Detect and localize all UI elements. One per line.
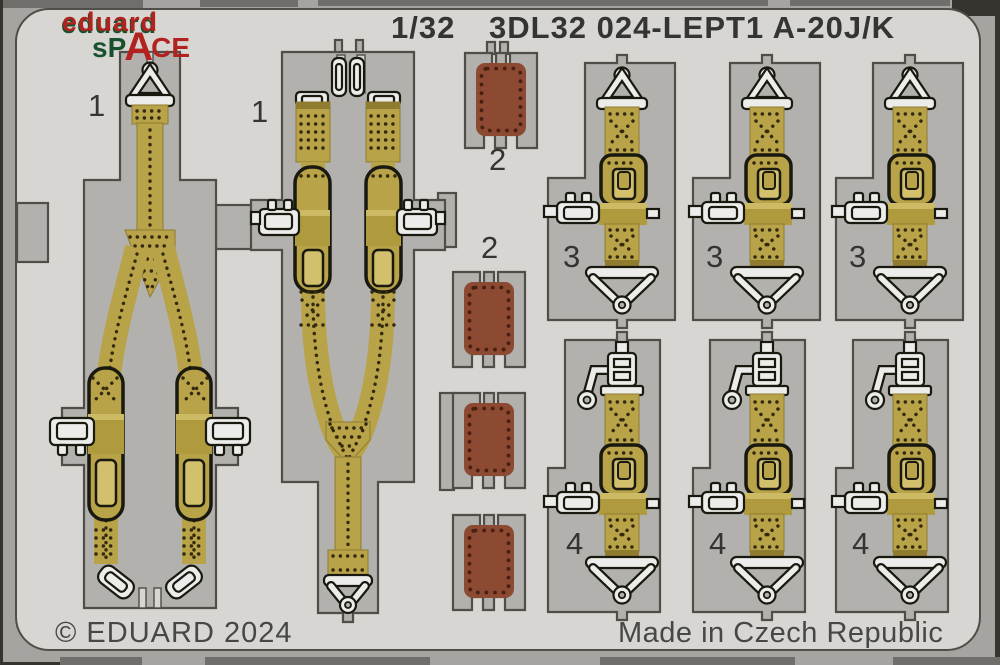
part-4-belt — [544, 332, 660, 620]
part-1-front-harness — [50, 52, 250, 608]
part-number-label: 4 — [852, 528, 869, 559]
eduard-space-logo: eduard sPACE — [58, 9, 190, 67]
part-3-belt — [544, 55, 675, 328]
made-in-label: Made in Czech Republic — [618, 617, 943, 650]
copyright-notice: © EDUARD 2024 — [55, 617, 292, 650]
fret-bridge — [17, 203, 48, 262]
part-4-belt — [832, 332, 948, 620]
part-number-label: 3 — [563, 241, 580, 272]
scale-label: 1/32 — [391, 10, 455, 46]
parts-artwork — [0, 0, 1000, 665]
part-2-pad — [465, 53, 537, 148]
part-2-pad — [453, 393, 525, 488]
brand-space-wordmark: sPACE — [92, 27, 190, 67]
part-number-label: 1 — [88, 90, 105, 121]
part-2-pad — [453, 515, 525, 610]
part-number-label: 3 — [849, 241, 866, 272]
part-1-rear-harness — [251, 52, 445, 622]
part-number-label: 4 — [709, 528, 726, 559]
part-number-label: 2 — [489, 144, 506, 175]
product-photo-fret-sheet: eduard sPACE 1/32 3DL32 024-LEPT1 A-20J/… — [0, 0, 1000, 665]
part-number-label: 1 — [251, 96, 268, 127]
part-number-label: 3 — [706, 241, 723, 272]
part-number-label: 2 — [481, 232, 498, 263]
fret-bridge — [440, 393, 454, 490]
part-3-belt — [832, 55, 963, 328]
fret-bridge — [216, 205, 254, 249]
part-2-pad — [453, 272, 525, 367]
part-number-label: 4 — [566, 528, 583, 559]
part-3-belt — [689, 55, 820, 328]
part-4-belt — [689, 332, 805, 620]
product-code: 3DL32 024-LEPT1 A-20J/K — [489, 10, 895, 46]
